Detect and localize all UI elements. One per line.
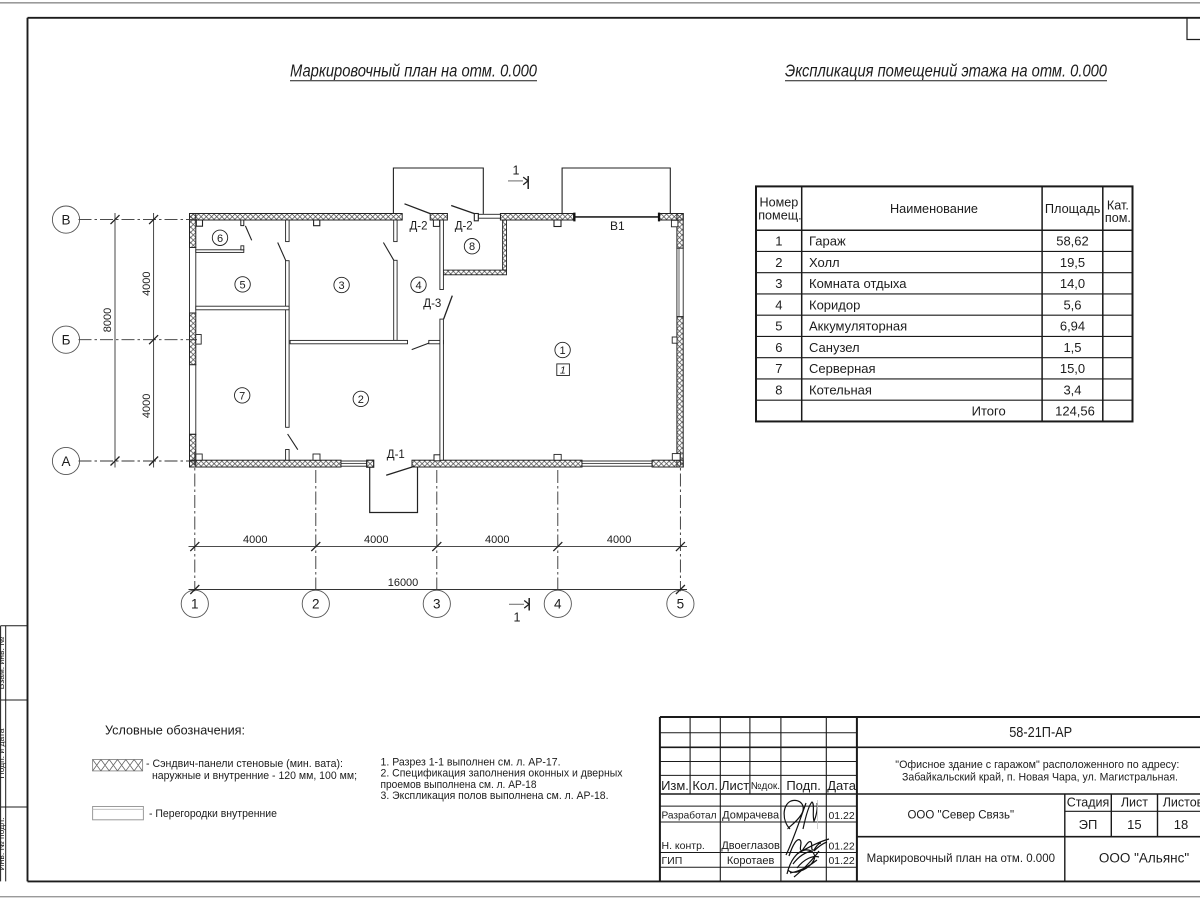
svg-text:1: 1 <box>513 164 520 178</box>
svg-text:Д-2: Д-2 <box>410 220 428 232</box>
svg-text:Д-1: Д-1 <box>387 449 405 461</box>
svg-text:Холл: Холл <box>809 255 840 270</box>
svg-text:наружные и внутренние - 120 мм: наружные и внутренние - 120 мм, 100 мм; <box>152 770 357 782</box>
svg-text:4000: 4000 <box>243 534 267 546</box>
svg-text:3: 3 <box>433 597 441 612</box>
svg-text:Комната отдыха: Комната отдыха <box>809 276 907 291</box>
svg-text:2: 2 <box>775 255 782 270</box>
svg-text:5,6: 5,6 <box>1063 297 1081 312</box>
svg-text:Площадь: Площадь <box>1045 201 1101 216</box>
svg-text:4000: 4000 <box>141 394 153 418</box>
svg-text:7: 7 <box>775 361 782 376</box>
svg-text:Дата: Дата <box>827 778 857 793</box>
svg-text:01.22: 01.22 <box>828 810 854 822</box>
svg-text:Стадия: Стадия <box>1067 796 1110 810</box>
svg-text:Разработал: Разработал <box>662 810 717 822</box>
svg-text:4000: 4000 <box>485 534 509 546</box>
svg-text:58,62: 58,62 <box>1056 234 1089 249</box>
svg-text:2: 2 <box>312 597 320 612</box>
svg-text:4000: 4000 <box>364 534 388 546</box>
svg-text:18: 18 <box>1174 817 1188 832</box>
svg-text:2: 2 <box>358 394 364 406</box>
svg-text:2. Спецификация заполнения око: 2. Спецификация заполнения оконных и две… <box>381 768 623 780</box>
svg-text:Д-3: Д-3 <box>423 298 441 310</box>
svg-text:124,56: 124,56 <box>1055 404 1095 419</box>
svg-text:Двоеглазов: Двоеглазов <box>721 840 780 852</box>
svg-text:58-21П-АР: 58-21П-АР <box>1009 725 1072 741</box>
svg-text:1: 1 <box>560 345 566 357</box>
svg-text:1. Разрез 1-1 выполнен см. л.: 1. Разрез 1-1 выполнен см. л. АР-17. <box>381 756 561 768</box>
svg-text:Кол.: Кол. <box>692 778 718 793</box>
svg-text:5: 5 <box>677 597 685 612</box>
svg-text:- Перегородки внутренние: - Перегородки внутренние <box>149 808 277 820</box>
svg-text:16000: 16000 <box>388 577 419 589</box>
svg-text:Инв. № подл.: Инв. № подл. <box>0 818 6 871</box>
svg-text:В: В <box>61 212 70 227</box>
svg-text:15,0: 15,0 <box>1060 361 1085 376</box>
svg-text:8: 8 <box>775 382 782 397</box>
svg-text:"Офисное здание с гаражом" рас: "Офисное здание с гаражом" расположенног… <box>895 759 1179 771</box>
svg-text:1: 1 <box>514 611 521 625</box>
svg-text:1: 1 <box>775 234 782 249</box>
svg-text:4: 4 <box>775 297 782 312</box>
svg-text:Д-2: Д-2 <box>455 220 473 232</box>
svg-text:3: 3 <box>339 280 345 292</box>
svg-text:ООО "Север Связь": ООО "Север Связь" <box>907 810 1014 822</box>
svg-text:4000: 4000 <box>141 271 153 295</box>
svg-text:ГИП: ГИП <box>662 855 683 867</box>
svg-text:01.22: 01.22 <box>828 855 854 867</box>
svg-text:1: 1 <box>191 597 199 612</box>
svg-text:3,4: 3,4 <box>1063 382 1081 397</box>
svg-text:1,5: 1,5 <box>1063 340 1081 355</box>
svg-text:Серверная: Серверная <box>809 361 876 376</box>
svg-text:Взам. инв. №: Взам. инв. № <box>0 637 6 690</box>
svg-text:6: 6 <box>217 233 223 245</box>
svg-text:4000: 4000 <box>607 534 631 546</box>
svg-text:Коротаев: Коротаев <box>727 855 775 867</box>
svg-text:Б: Б <box>62 333 71 348</box>
svg-text:Забайкальский край, п. Новая Ч: Забайкальский край, п. Новая Чара, ул. М… <box>902 771 1178 783</box>
svg-text:Маркировочный план на отм. 0.0: Маркировочный план на отм. 0.000 <box>867 853 1055 865</box>
svg-text:пом.: пом. <box>1105 211 1131 225</box>
svg-text:3: 3 <box>775 276 782 291</box>
svg-text:ЭП: ЭП <box>1079 817 1098 832</box>
svg-text:Домрачева: Домрачева <box>722 809 780 821</box>
svg-text:Гараж: Гараж <box>809 234 846 249</box>
svg-text:4: 4 <box>554 597 562 612</box>
svg-text:Условные обозначения:: Условные обозначения: <box>105 723 245 738</box>
svg-text:01.22: 01.22 <box>828 840 854 852</box>
svg-text:3. Экспликация полов выполнена: 3. Экспликация полов выполнена см. л. АР… <box>381 790 609 802</box>
svg-text:Листов: Листов <box>1163 796 1200 810</box>
svg-text:6,94: 6,94 <box>1060 319 1085 334</box>
svg-text:Коридор: Коридор <box>809 297 860 312</box>
svg-text:Лист: Лист <box>721 778 749 793</box>
svg-text:помещ.: помещ. <box>758 208 801 222</box>
svg-text:В1: В1 <box>610 219 625 233</box>
svg-text:Н. контр.: Н. контр. <box>662 840 705 852</box>
svg-text:Аккумуляторная: Аккумуляторная <box>809 319 907 334</box>
svg-text:19,5: 19,5 <box>1060 255 1085 270</box>
svg-text:Итого: Итого <box>972 404 1006 419</box>
svg-text:6: 6 <box>775 340 782 355</box>
svg-text:ООО "Альянс": ООО "Альянс" <box>1099 851 1189 866</box>
svg-text:8000: 8000 <box>102 308 114 332</box>
svg-text:Подп.: Подп. <box>786 778 821 793</box>
svg-text:5: 5 <box>240 279 246 291</box>
svg-text:№док.: №док. <box>751 781 780 792</box>
svg-text:Наименование: Наименование <box>890 201 978 216</box>
svg-text:1: 1 <box>560 364 566 376</box>
svg-text:проемов выполнена см. л. АР-18: проемов выполнена см. л. АР-18 <box>381 779 537 791</box>
svg-text:5: 5 <box>775 319 782 334</box>
svg-text:4: 4 <box>415 280 421 292</box>
svg-text:Санузел: Санузел <box>809 340 860 355</box>
svg-text:Экспликация помещений этажа на: Экспликация помещений этажа на отм. 0.00… <box>785 61 1107 81</box>
svg-text:14,0: 14,0 <box>1060 276 1085 291</box>
svg-text:Подп. и дата: Подп. и дата <box>0 728 6 778</box>
svg-text:- Сэндвич-панели стеновые (мин: - Сэндвич-панели стеновые (мин. вата): <box>146 758 343 770</box>
svg-text:А: А <box>61 454 70 469</box>
svg-text:7: 7 <box>239 390 245 402</box>
svg-text:Изм.: Изм. <box>661 778 689 793</box>
svg-text:Котельная: Котельная <box>809 382 872 397</box>
svg-text:15: 15 <box>1127 817 1141 832</box>
svg-text:Лист: Лист <box>1121 796 1148 810</box>
svg-text:8: 8 <box>469 241 475 253</box>
svg-text:Маркировочный план на отм. 0.0: Маркировочный план на отм. 0.000 <box>290 61 537 81</box>
